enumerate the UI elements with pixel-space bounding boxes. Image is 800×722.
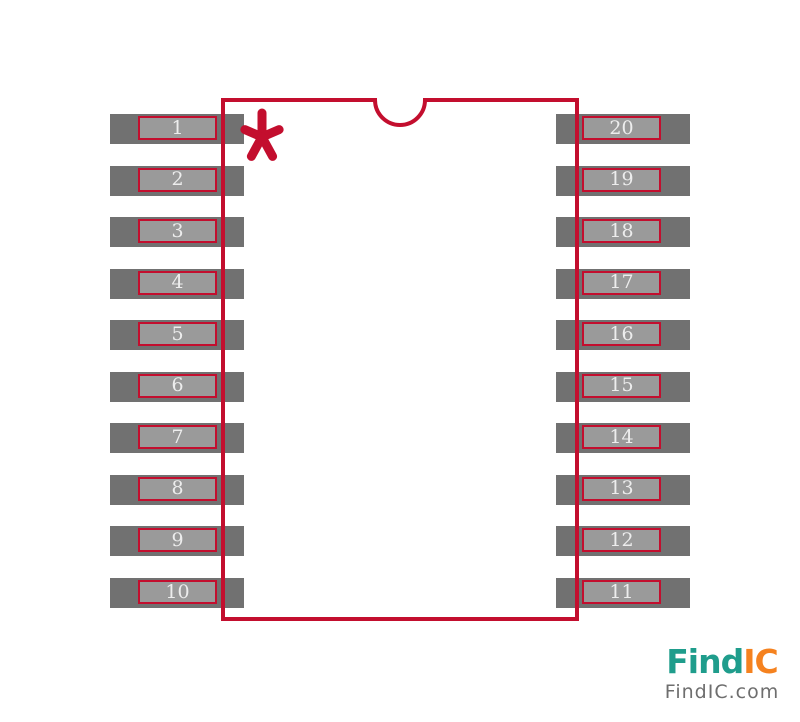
pin-number: 3 bbox=[171, 222, 183, 241]
findic-logo-domain: FindIC.com bbox=[654, 681, 790, 703]
pin-number: 13 bbox=[609, 479, 633, 498]
pin-number: 16 bbox=[609, 325, 633, 344]
pad-land-outline: 6 bbox=[138, 374, 217, 398]
pad-land-outline: 20 bbox=[582, 116, 661, 140]
pin-number: 6 bbox=[171, 376, 183, 395]
pin-number: 9 bbox=[171, 531, 183, 550]
pad-land-outline: 13 bbox=[582, 477, 661, 501]
pad-land-outline: 8 bbox=[138, 477, 217, 501]
footprint-stage: 12345678910 20191817161514131211 FindIC … bbox=[0, 0, 800, 722]
pin-number: 7 bbox=[171, 428, 183, 447]
pin-number: 2 bbox=[171, 170, 183, 189]
pin-number: 20 bbox=[609, 119, 633, 138]
pin-number: 17 bbox=[609, 273, 633, 292]
pin-number: 18 bbox=[609, 222, 633, 241]
pad-land-outline: 7 bbox=[138, 425, 217, 449]
pad-land-outline: 18 bbox=[582, 219, 661, 243]
package-body-outline bbox=[221, 98, 579, 621]
pad-land-outline: 12 bbox=[582, 528, 661, 552]
pin-number: 14 bbox=[609, 428, 633, 447]
pin-number: 10 bbox=[165, 583, 189, 602]
pin-number: 8 bbox=[171, 479, 183, 498]
findic-logo: FindIC FindIC.com bbox=[654, 645, 790, 703]
pin-number: 12 bbox=[609, 531, 633, 550]
pin-number: 15 bbox=[609, 376, 633, 395]
pin1-notch-icon bbox=[372, 96, 428, 132]
pad-land-outline: 16 bbox=[582, 322, 661, 346]
pad-land-outline: 5 bbox=[138, 322, 217, 346]
findic-logo-wordmark: FindIC bbox=[654, 645, 790, 678]
pad-land-outline: 9 bbox=[138, 528, 217, 552]
pad-land-outline: 17 bbox=[582, 271, 661, 295]
pad-land-outline: 1 bbox=[138, 116, 217, 140]
pin-number: 11 bbox=[609, 583, 633, 602]
logo-brand-find: Find bbox=[666, 642, 743, 681]
pin-number: 4 bbox=[171, 273, 183, 292]
pad-land-outline: 10 bbox=[138, 580, 217, 604]
pad-land-outline: 3 bbox=[138, 219, 217, 243]
pin1-marker-asterisk-icon bbox=[232, 107, 292, 167]
pad-land-outline: 14 bbox=[582, 425, 661, 449]
pad-land-outline: 11 bbox=[582, 580, 661, 604]
pin-number: 19 bbox=[609, 170, 633, 189]
pad-land-outline: 4 bbox=[138, 271, 217, 295]
pad-land-outline: 2 bbox=[138, 168, 217, 192]
pad-land-outline: 19 bbox=[582, 168, 661, 192]
pin-number: 5 bbox=[171, 325, 183, 344]
pin-number: 1 bbox=[171, 119, 183, 138]
pad-land-outline: 15 bbox=[582, 374, 661, 398]
logo-brand-ic: IC bbox=[743, 642, 778, 681]
